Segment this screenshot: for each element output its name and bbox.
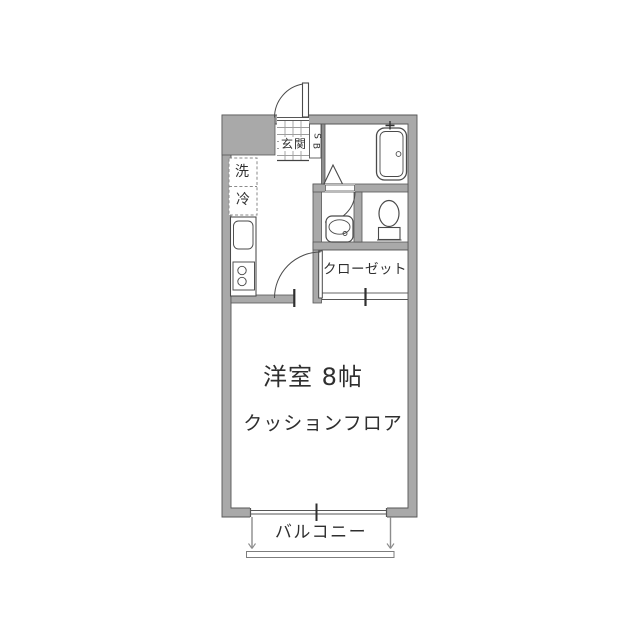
floor-plan-canvas: 玄関 S B 洗 冷 クローゼット 洋室 8帖 クッションフロア バルコニー [0,0,640,640]
balcony-label: バルコニー [275,525,367,542]
bathtub [377,128,407,180]
kitchen-sink [234,221,254,249]
washer-space-label: 洗 [235,165,249,179]
shoe-box-letter-s: S [311,133,320,139]
toilet-bowl [379,201,399,227]
closet [322,250,408,306]
balcony-line-arrowheads [249,544,395,549]
toilet-room [377,201,402,241]
toilet-tank [379,228,401,240]
closet-label: クローゼット [323,263,407,277]
floor-type-label: クッションフロア [243,415,402,434]
entrance-door-leaf [303,83,309,117]
shoe-box-label: S B [312,132,318,151]
wall-washroom-toilet [354,192,362,242]
fridge-space-label: 冷 [236,193,250,207]
entrance-label: 玄関 [279,137,309,151]
shoe-box-letter-b: B [311,143,320,149]
entrance-door-arc [275,84,304,118]
wall-above-closet [313,242,408,250]
room-door-leaf [319,251,323,298]
window-opening [250,508,387,518]
western-room-label: 洋室 8帖 [263,365,363,389]
bathroom-corner-triangle [324,165,343,184]
washroom [326,216,353,242]
top-left-wall-block [222,115,275,155]
balcony-edge-band [247,552,395,558]
bathroom-door-leaf [326,185,355,191]
wall-bathroom-left [322,124,326,184]
floor-plan-drawing [0,0,640,640]
